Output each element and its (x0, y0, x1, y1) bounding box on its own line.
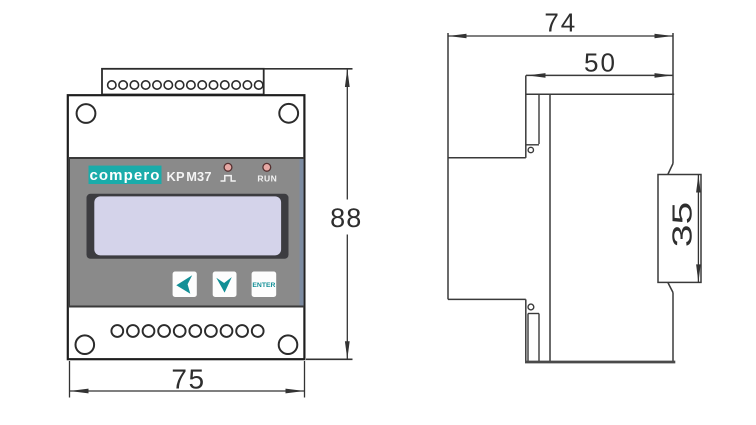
svg-text:KPM37: KPM37 (167, 169, 212, 184)
svg-text:75: 75 (171, 364, 205, 395)
svg-text:ENTER: ENTER (252, 282, 275, 289)
svg-text:compero: compero (89, 167, 160, 184)
svg-text:RUN: RUN (257, 174, 277, 184)
svg-text:35: 35 (666, 202, 697, 248)
svg-text:74: 74 (544, 8, 577, 38)
svg-text:50: 50 (584, 48, 617, 78)
svg-text:88: 88 (330, 203, 362, 233)
